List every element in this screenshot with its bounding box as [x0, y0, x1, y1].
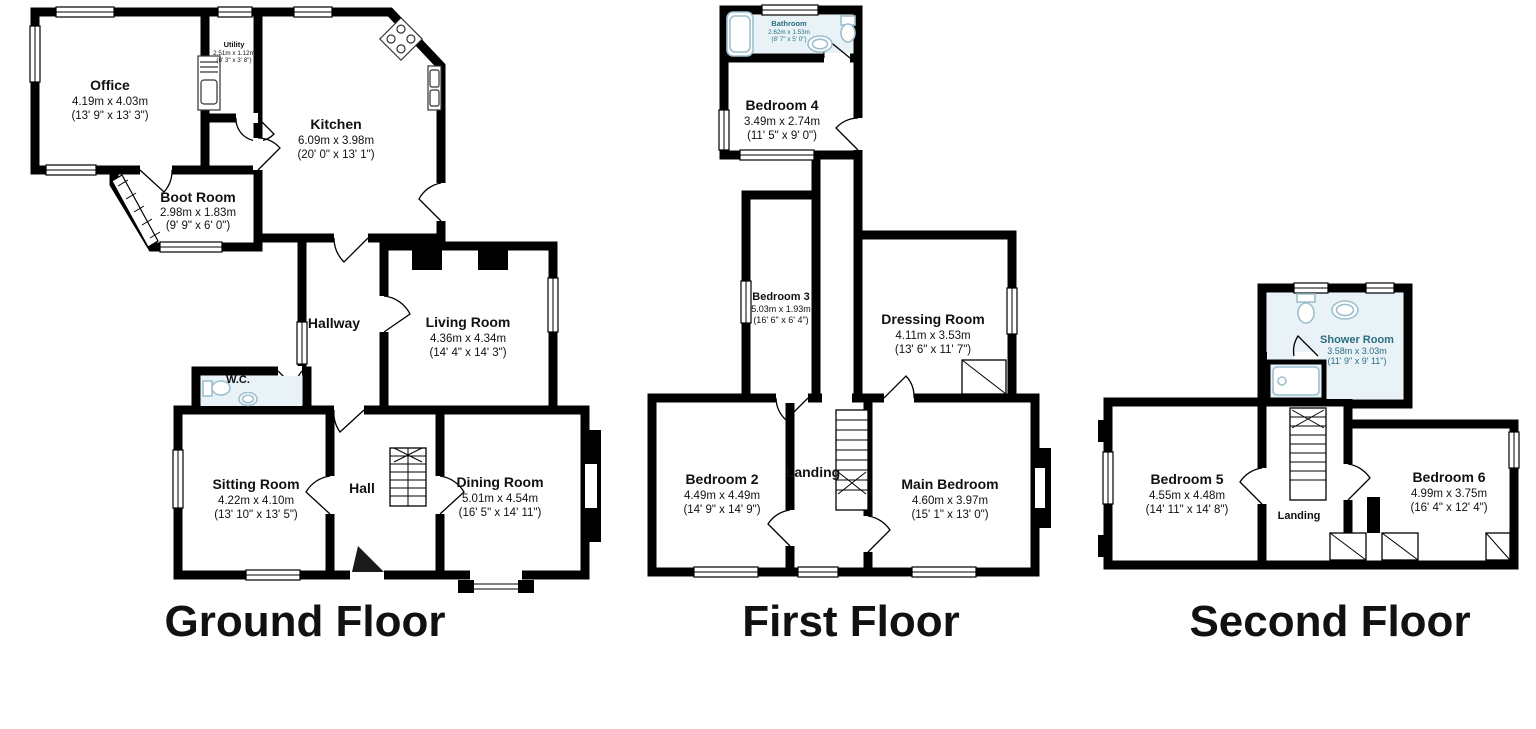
- svg-text:Sitting Room: Sitting Room: [212, 476, 299, 492]
- svg-text:4.49m x 4.49m: 4.49m x 4.49m: [684, 490, 760, 502]
- svg-text:(13' 9" x 13' 3"): (13' 9" x 13' 3"): [71, 110, 148, 122]
- first-floor-stairs: [836, 410, 868, 510]
- shower-sink-icon: [1332, 301, 1358, 319]
- room-label-bedroom-6: Bedroom 6 4.99m x 3.75m (16' 4" x 12' 4"…: [1410, 469, 1487, 514]
- first-floor-title: First Floor: [742, 597, 960, 646]
- room-label-landing-first: Landing: [786, 464, 840, 480]
- bath-icon: [727, 12, 753, 56]
- ground-floor-plan: Office 4.19m x 4.03m (13' 9" x 13' 3") U…: [30, 7, 601, 646]
- svg-text:4.99m x 3.75m: 4.99m x 3.75m: [1411, 488, 1487, 500]
- svg-text:Bedroom 5: Bedroom 5: [1150, 471, 1223, 487]
- svg-text:Dining Room: Dining Room: [456, 474, 543, 490]
- svg-text:6.09m x 3.98m: 6.09m x 3.98m: [298, 135, 374, 147]
- svg-text:4.55m x 4.48m: 4.55m x 4.48m: [1149, 490, 1225, 502]
- shower-tray-icon: [1268, 362, 1324, 400]
- svg-text:4.60m x 3.97m: 4.60m x 3.97m: [912, 495, 988, 507]
- svg-text:4.36m x 4.34m: 4.36m x 4.34m: [430, 333, 506, 345]
- dressing-room-cupboard-icon: [962, 360, 1006, 394]
- room-label-main-bedroom: Main Bedroom 4.60m x 3.97m (15' 1" x 13'…: [901, 476, 998, 521]
- svg-text:4.19m x 4.03m: 4.19m x 4.03m: [72, 96, 148, 108]
- kitchen-sink-icon: [428, 66, 441, 110]
- svg-text:Bathroom: Bathroom: [771, 19, 807, 28]
- svg-text:(15' 1" x 13' 0"): (15' 1" x 13' 0"): [911, 509, 988, 521]
- svg-text:(8' 7" x 5' 0"): (8' 7" x 5' 0"): [771, 36, 806, 43]
- floorplan-canvas: Office 4.19m x 4.03m (13' 9" x 13' 3") U…: [0, 0, 1536, 729]
- ground-floor-title: Ground Floor: [164, 597, 445, 646]
- svg-text:(13' 6" x 11' 7"): (13' 6" x 11' 7"): [895, 344, 971, 356]
- svg-text:(9' 9" x 6' 0"): (9' 9" x 6' 0"): [166, 220, 230, 232]
- svg-text:(16' 5" x 14' 11"): (16' 5" x 14' 11"): [459, 507, 542, 519]
- room-label-boot-room: Boot Room 2.98m x 1.83m (9' 9" x 6' 0"): [160, 189, 236, 232]
- room-label-bedroom-2: Bedroom 2 4.49m x 4.49m (14' 9" x 14' 9"…: [683, 471, 760, 516]
- svg-text:5.03m x 1.93m: 5.03m x 1.93m: [751, 304, 811, 314]
- svg-text:Shower Room: Shower Room: [1320, 334, 1394, 346]
- svg-text:3.58m x 3.03m: 3.58m x 3.03m: [1327, 346, 1387, 356]
- svg-text:Dressing Room: Dressing Room: [881, 311, 984, 327]
- svg-text:2.51m x 1.12m: 2.51m x 1.12m: [213, 50, 255, 57]
- svg-text:(13' 10" x 13' 5"): (13' 10" x 13' 5"): [214, 509, 298, 521]
- bathroom-toilet-icon: [841, 16, 855, 42]
- svg-text:(14' 4" x 14' 3"): (14' 4" x 14' 3"): [429, 347, 506, 359]
- room-label-landing-second: Landing: [1278, 510, 1321, 522]
- svg-text:(14' 11" x 14' 8"): (14' 11" x 14' 8"): [1146, 504, 1229, 516]
- svg-text:Bedroom 6: Bedroom 6: [1412, 469, 1485, 485]
- svg-text:Bedroom 2: Bedroom 2: [685, 471, 758, 487]
- wc-basin-icon: [239, 393, 257, 406]
- room-label-hall: Hall: [349, 480, 375, 496]
- svg-text:2.98m x 1.83m: 2.98m x 1.83m: [160, 207, 236, 219]
- svg-text:Bedroom 3: Bedroom 3: [752, 291, 809, 303]
- second-floor-stairs: [1290, 408, 1326, 500]
- svg-text:4.22m x 4.10m: 4.22m x 4.10m: [218, 495, 294, 507]
- room-label-wc: W.C.: [226, 374, 250, 386]
- room-label-dining-room: Dining Room 5.01m x 4.54m (16' 5" x 14' …: [456, 474, 543, 519]
- svg-text:(11' 5" x 9' 0"): (11' 5" x 9' 0"): [747, 130, 817, 142]
- svg-text:Living Room: Living Room: [426, 314, 511, 330]
- svg-text:Boot Room: Boot Room: [160, 189, 235, 205]
- utility-sink-icon: [198, 56, 220, 110]
- ground-floor-stairs: [390, 448, 426, 506]
- room-label-sitting-room: Sitting Room 4.22m x 4.10m (13' 10" x 13…: [212, 476, 299, 521]
- svg-text:Bedroom 4: Bedroom 4: [745, 97, 818, 113]
- svg-text:(14' 9" x 14' 9"): (14' 9" x 14' 9"): [683, 504, 760, 516]
- svg-text:Utility: Utility: [224, 40, 246, 49]
- room-label-shower-room: Shower Room 3.58m x 3.03m (11' 9" x 9' 1…: [1320, 334, 1394, 366]
- first-floor-plan: Bathroom 2.62m x 1.53m (8' 7" x 5' 0") B…: [652, 5, 1051, 646]
- svg-text:2.62m x 1.53m: 2.62m x 1.53m: [768, 29, 810, 36]
- svg-text:(20' 0" x 13' 1"): (20' 0" x 13' 1"): [297, 149, 374, 161]
- svg-text:(8' 3" x 3' 8"): (8' 3" x 3' 8"): [216, 57, 251, 64]
- svg-text:5.01m x 4.54m: 5.01m x 4.54m: [462, 493, 538, 505]
- room-label-bathroom: Bathroom 2.62m x 1.53m (8' 7" x 5' 0"): [768, 19, 810, 43]
- second-floor-plan: Shower Room 3.58m x 3.03m (11' 9" x 9' 1…: [1098, 283, 1519, 646]
- room-label-living-room: Living Room 4.36m x 4.34m (14' 4" x 14' …: [426, 314, 511, 359]
- svg-text:(16' 6" x 6' 4"): (16' 6" x 6' 4"): [753, 315, 808, 325]
- svg-text:Kitchen: Kitchen: [310, 116, 361, 132]
- room-label-dressing-room: Dressing Room 4.11m x 3.53m (13' 6" x 11…: [881, 311, 984, 356]
- svg-text:(11' 9" x 9' 11"): (11' 9" x 9' 11"): [1327, 356, 1386, 366]
- bathroom-sink-icon: [808, 36, 832, 52]
- svg-text:3.49m x 2.74m: 3.49m x 2.74m: [744, 116, 820, 128]
- svg-text:Main Bedroom: Main Bedroom: [901, 476, 998, 492]
- second-floor-title: Second Floor: [1189, 597, 1470, 646]
- shower-toilet-icon: [1297, 294, 1315, 323]
- room-label-bedroom-5: Bedroom 5 4.55m x 4.48m (14' 11" x 14' 8…: [1146, 471, 1229, 516]
- floorplan-page: Office 4.19m x 4.03m (13' 9" x 13' 3") U…: [0, 0, 1536, 729]
- room-label-hallway: Hallway: [308, 315, 360, 331]
- room-label-bedroom-3: Bedroom 3 5.03m x 1.93m (16' 6" x 6' 4"): [751, 291, 811, 325]
- svg-text:(16' 4" x 12' 4"): (16' 4" x 12' 4"): [1410, 502, 1487, 514]
- svg-text:4.11m x 3.53m: 4.11m x 3.53m: [895, 330, 970, 342]
- room-label-bedroom-4: Bedroom 4 3.49m x 2.74m (11' 5" x 9' 0"): [744, 97, 820, 142]
- svg-text:Office: Office: [90, 77, 130, 93]
